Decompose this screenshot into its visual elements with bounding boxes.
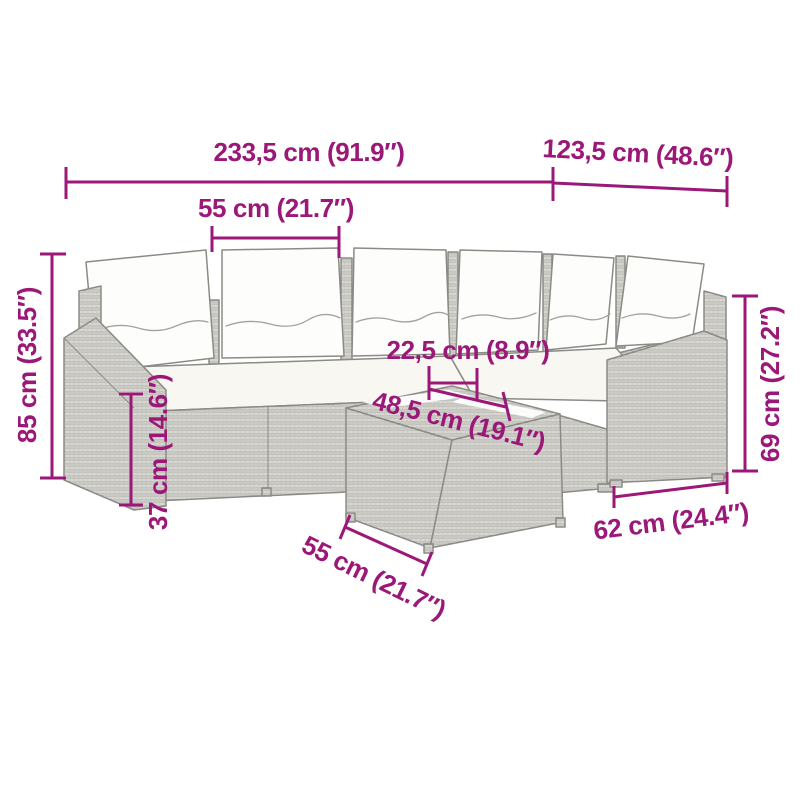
dim-label-seat-height: 37 cm (14.6″) bbox=[145, 374, 171, 530]
dimension-line-corner-depth bbox=[553, 176, 727, 207]
table-foot bbox=[556, 518, 565, 527]
dimension-line-overall-height bbox=[40, 254, 66, 478]
sofa-foot bbox=[712, 474, 724, 481]
dim-label-overall-height: 85 cm (33.5″) bbox=[14, 287, 40, 443]
back-cushion bbox=[222, 248, 344, 358]
dim-label-overall-width: 233,5 cm (91.9″) bbox=[213, 139, 404, 165]
dim-label-table-top-depth: 22,5 cm (8.9″) bbox=[387, 337, 550, 363]
sofa-foot bbox=[610, 480, 622, 487]
dim-label-seat-module-width: 55 cm (21.7″) bbox=[198, 195, 354, 221]
back-cushion bbox=[616, 256, 704, 346]
dim-label-back-height: 69 cm (27.2″) bbox=[757, 306, 783, 462]
back-cushion bbox=[546, 254, 614, 350]
sofa-foot bbox=[262, 488, 271, 496]
table-foot bbox=[424, 544, 433, 553]
product-dimension-diagram: 233,5 cm (91.9″) 123,5 cm (48.6″) 55 cm … bbox=[0, 0, 800, 800]
